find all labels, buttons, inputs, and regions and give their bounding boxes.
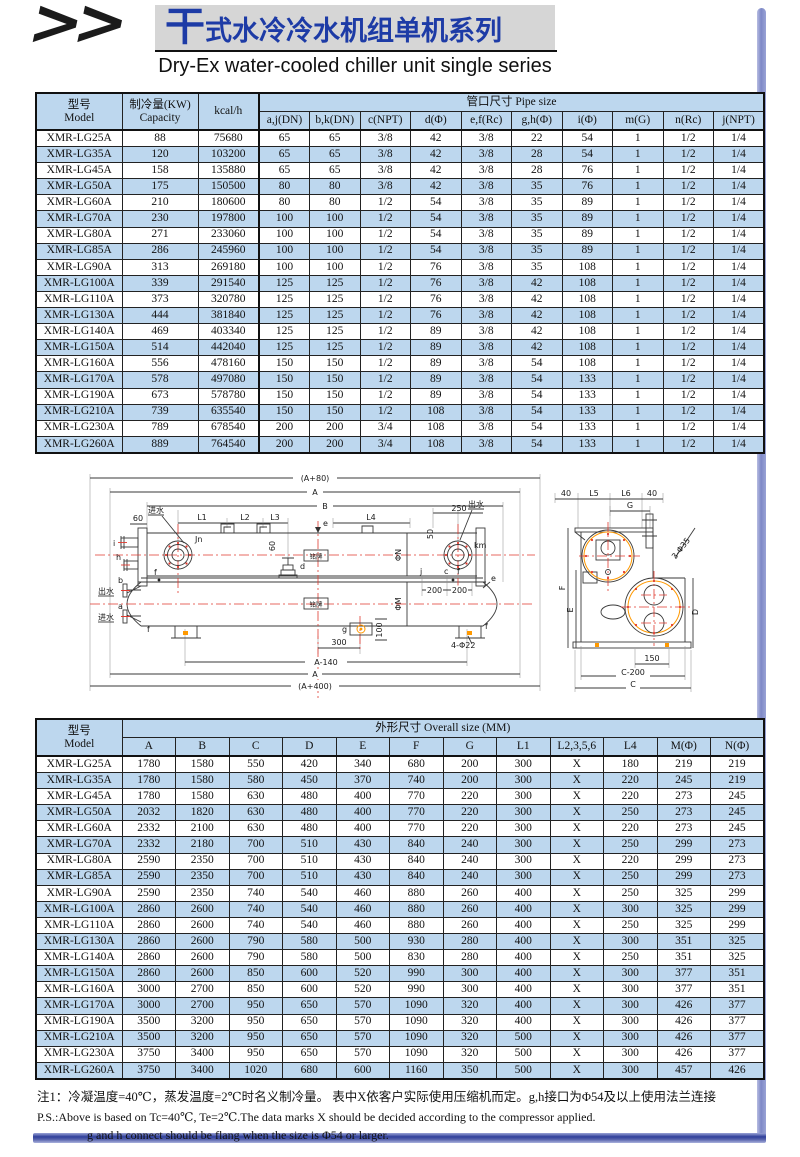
table-cell: 325 [657, 885, 711, 901]
table-cell: 260 [443, 885, 497, 901]
table-cell: 2700 [176, 982, 230, 998]
point-label: f [147, 625, 150, 634]
table-cell: 3/8 [461, 308, 512, 324]
table-cell: 510 [283, 869, 337, 885]
table-row: XMR-LG85A2862459601001001/2543/8358911/2… [36, 243, 764, 259]
table-cell: 1580 [176, 773, 230, 789]
table-cell: 200 [259, 420, 310, 436]
table-cell: 1 [613, 372, 664, 388]
table-cell: 850 [229, 982, 283, 998]
table-cell: 250 [604, 885, 658, 901]
table-cell: XMR-LG25A [36, 130, 122, 147]
table-cell: 133 [562, 436, 613, 453]
table-cell: 500 [497, 1030, 551, 1046]
table-row: XMR-LG130A4443818401251251/2763/84210811… [36, 308, 764, 324]
table-cell: 400 [497, 982, 551, 998]
point-label: f [457, 567, 460, 576]
table-cell: 89 [562, 227, 613, 243]
table-cell: XMR-LG170A [36, 372, 122, 388]
table-cell: 450 [283, 773, 337, 789]
table-cell: 100 [259, 227, 310, 243]
table-cell: 351 [711, 982, 765, 998]
table-cell: 120 [122, 147, 198, 163]
table-cell: 260 [443, 901, 497, 917]
table-cell: 403340 [198, 324, 259, 340]
table-cell: X [550, 966, 604, 982]
table-cell: 770 [390, 821, 444, 837]
page-title-accent: 干 [165, 5, 205, 50]
overall-size-table: 型号 Model 外形尺寸 Overall size (MM) A B C D … [35, 718, 765, 1080]
table-cell: 28 [512, 163, 563, 179]
table-cell: 271 [122, 227, 198, 243]
table-cell: 108 [411, 436, 462, 453]
col-header: a,j(DN) [259, 112, 310, 131]
table-cell: 80 [310, 195, 361, 211]
table-cell: 245 [657, 773, 711, 789]
table-cell: 100 [310, 227, 361, 243]
table-cell: 65 [259, 147, 310, 163]
table-cell: 240 [443, 837, 497, 853]
table-cell: 100 [259, 259, 310, 275]
table-cell: 497080 [198, 372, 259, 388]
table-cell: 175 [122, 179, 198, 195]
dim-label: C [630, 680, 636, 689]
table-cell: 133 [562, 420, 613, 436]
port-label: Jn [194, 535, 202, 544]
table-cell: 300 [604, 901, 658, 917]
table-row: XMR-LG110A28602600740540460880260400X250… [36, 917, 764, 933]
table-cell: XMR-LG160A [36, 356, 122, 372]
table-cell: 630 [229, 821, 283, 837]
table-cell: 1/4 [714, 195, 765, 211]
table-cell: 2332 [122, 837, 176, 853]
table-cell: 200 [443, 773, 497, 789]
capacity-column-header: 制冷量(KW) Capacity [122, 93, 198, 130]
dim-label: 150 [644, 654, 659, 663]
capacity-header-en: Capacity [123, 112, 198, 125]
table-row: XMR-LG80A2712330601001001/2543/8358911/2… [36, 227, 764, 243]
col-header: D [283, 738, 337, 757]
table-cell: 1 [613, 388, 664, 404]
table-cell: 89 [562, 195, 613, 211]
table-cell: 22 [512, 130, 563, 147]
table-cell: 1 [613, 275, 664, 291]
table-cell: 180600 [198, 195, 259, 211]
table-row: XMR-LG260A8897645402002003/41083/8541331… [36, 436, 764, 453]
table-cell: 381840 [198, 308, 259, 324]
table-cell: 400 [497, 901, 551, 917]
table-cell: 65 [310, 130, 361, 147]
table-cell: 320780 [198, 291, 259, 307]
table-cell: 700 [229, 837, 283, 853]
table-row: XMR-LG100A3392915401251251/2763/84210811… [36, 275, 764, 291]
dim-label: A [312, 670, 318, 679]
col-header: F [390, 738, 444, 757]
nameplate-label: 铭牌 [310, 600, 324, 609]
table-cell: 42 [512, 340, 563, 356]
table-cell: X [550, 853, 604, 869]
table-cell: 514 [122, 340, 198, 356]
table-cell: 300 [604, 998, 658, 1014]
table-cell: 3/8 [360, 163, 411, 179]
water-out-label: 出水 [468, 499, 484, 509]
table-cell: 1780 [122, 789, 176, 805]
table-cell: 2590 [122, 885, 176, 901]
table-cell: 250 [604, 805, 658, 821]
table-cell: X [550, 869, 604, 885]
table-row: XMR-LG60A23322100630480400770220300X2202… [36, 821, 764, 837]
table-cell: 108 [562, 324, 613, 340]
table-cell: 150500 [198, 179, 259, 195]
table-cell: 1/2 [360, 388, 411, 404]
model-header-zh: 型号 [37, 725, 122, 738]
table-cell: 3400 [176, 1046, 230, 1062]
table-cell: 54 [512, 356, 563, 372]
table-cell: 1/2 [360, 259, 411, 275]
table-cell: 370 [336, 773, 390, 789]
table-cell: 150 [259, 388, 310, 404]
table-cell: XMR-LG50A [36, 179, 122, 195]
table-row: XMR-LG230A375034009506505701090320500X30… [36, 1046, 764, 1062]
table-cell: 1/2 [663, 195, 714, 211]
table-cell: X [550, 837, 604, 853]
table-cell: 1/2 [360, 372, 411, 388]
table-cell: 950 [229, 1030, 283, 1046]
end-view-drawing: 40 L5 L6 40 G [555, 489, 700, 692]
table-cell: 220 [443, 805, 497, 821]
table-cell: 125 [259, 324, 310, 340]
table-cell: 351 [657, 934, 711, 950]
table-cell: 580 [229, 773, 283, 789]
table-cell: 42 [512, 291, 563, 307]
table-cell: 2600 [176, 950, 230, 966]
table-cell: 3500 [122, 1014, 176, 1030]
table-cell: 377 [711, 1014, 765, 1030]
table-cell: XMR-LG230A [36, 420, 122, 436]
table-cell: 377 [657, 982, 711, 998]
table-cell: 1/4 [714, 211, 765, 227]
table-cell: X [550, 756, 604, 773]
table-row: XMR-LG25A887568065653/8423/8225411/21/4 [36, 130, 764, 147]
table-cell: 3/8 [461, 195, 512, 211]
table-cell: 480 [283, 805, 337, 821]
table-cell: 3200 [176, 1014, 230, 1030]
table-cell: 1090 [390, 1014, 444, 1030]
col-header: C [229, 738, 283, 757]
table-cell: 2860 [122, 934, 176, 950]
table-cell: 3000 [122, 982, 176, 998]
table-cell: 325 [711, 934, 765, 950]
table-cell: 1 [613, 227, 664, 243]
table-cell: 990 [390, 966, 444, 982]
dim-label: L4 [366, 513, 376, 522]
table-cell: 245960 [198, 243, 259, 259]
col-header: c(NPT) [360, 112, 411, 131]
table-cell: 1/2 [663, 179, 714, 195]
table-cell: 3750 [122, 1062, 176, 1079]
table-cell: 3/8 [461, 227, 512, 243]
table-cell: 650 [283, 998, 337, 1014]
col-header: m(G) [613, 112, 664, 131]
table-cell: 1 [613, 420, 664, 436]
table-cell: 108 [562, 275, 613, 291]
table-cell: 3/8 [360, 130, 411, 147]
table-cell: XMR-LG45A [36, 163, 122, 179]
table-cell: 150 [259, 372, 310, 388]
table-cell: X [550, 998, 604, 1014]
table-cell: 1/4 [714, 179, 765, 195]
table-cell: 1/2 [663, 324, 714, 340]
table-cell: 680 [390, 756, 444, 773]
table-cell: 35 [512, 195, 563, 211]
chevrons-decoration: >> [22, 0, 127, 60]
table-cell: 680 [283, 1062, 337, 1079]
table-cell: 1/2 [663, 356, 714, 372]
dim-label: (A+80) [301, 474, 330, 483]
col-header: G [443, 738, 497, 757]
water-in-label: 进水 [148, 505, 164, 515]
table-row: XMR-LG35A12010320065653/8423/8285411/21/… [36, 147, 764, 163]
table-cell: 1/2 [663, 404, 714, 420]
table-cell: 80 [259, 195, 310, 211]
table-cell: 100 [310, 243, 361, 259]
table-cell: 42 [411, 179, 462, 195]
table-cell: 1/4 [714, 163, 765, 179]
dim-label: 4-Φ22 [451, 641, 475, 650]
table-cell: 245 [711, 789, 765, 805]
model-header-en: Model [37, 738, 122, 751]
table-cell: 300 [497, 853, 551, 869]
dim-label: A [312, 488, 318, 497]
table-cell: 291540 [198, 275, 259, 291]
table-cell: 260 [443, 917, 497, 933]
table-cell: 125 [310, 308, 361, 324]
table-cell: 1/2 [663, 436, 714, 453]
table-cell: XMR-LG45A [36, 789, 122, 805]
table-cell: 1780 [122, 756, 176, 773]
table-cell: 1 [613, 211, 664, 227]
table-cell: 273 [711, 837, 765, 853]
water-out-label: 出水 [98, 586, 114, 596]
table-cell: 54 [562, 147, 613, 163]
col-header: M(Φ) [657, 738, 711, 757]
pipe-size-group-header: 管口尺寸 Pipe size [259, 93, 764, 112]
table-cell: 426 [657, 1046, 711, 1062]
table-cell: 1/2 [663, 275, 714, 291]
kcal-column-header: kcal/h [198, 93, 259, 130]
table-cell: 850 [229, 966, 283, 982]
table-cell: 373 [122, 291, 198, 307]
table-row: XMR-LG110A3733207801251251/2763/84210811… [36, 291, 764, 307]
table-cell: 426 [657, 1030, 711, 1046]
dim-label: L6 [621, 489, 631, 498]
table-cell: 230 [122, 211, 198, 227]
table-cell: 219 [657, 756, 711, 773]
table-cell: 133 [562, 388, 613, 404]
col-header: N(Φ) [711, 738, 765, 757]
table-row: XMR-LG260A3750340010206806001160350500X3… [36, 1062, 764, 1079]
table-cell: XMR-LG260A [36, 1062, 122, 1079]
table-cell: 89 [411, 356, 462, 372]
pipe-size-table: 型号 Model 制冷量(KW) Capacity kcal/h 管口尺寸 Pi… [35, 92, 765, 454]
table-cell: 880 [390, 885, 444, 901]
table-row: XMR-LG150A28602600850600520990300400X300… [36, 966, 764, 982]
table-cell: 299 [657, 869, 711, 885]
table-row: XMR-LG70A2301978001001001/2543/8358911/2… [36, 211, 764, 227]
table-cell: X [550, 1062, 604, 1079]
table-cell: 108 [562, 291, 613, 307]
table-cell: 3/8 [461, 243, 512, 259]
point-label: i [113, 539, 115, 548]
table-cell: 245 [711, 821, 765, 837]
table-cell: XMR-LG80A [36, 853, 122, 869]
table-cell: 1 [613, 324, 664, 340]
table-cell: X [550, 950, 604, 966]
dim-label: 50 [426, 529, 435, 539]
table-cell: 1/2 [360, 211, 411, 227]
table-cell: 650 [283, 1046, 337, 1062]
table-cell: 1/4 [714, 356, 765, 372]
table-cell: 54 [411, 227, 462, 243]
table-cell: 1820 [176, 805, 230, 821]
table-cell: 125 [310, 275, 361, 291]
table-cell: 2032 [122, 805, 176, 821]
dim-label: A-140 [314, 658, 337, 667]
table-cell: 3/8 [461, 420, 512, 436]
table-cell: 430 [336, 837, 390, 853]
table-cell: XMR-LG80A [36, 227, 122, 243]
table-row: XMR-LG170A5784970801501501/2893/85413311… [36, 372, 764, 388]
table-cell: 400 [497, 934, 551, 950]
table-cell: 3/8 [461, 147, 512, 163]
table-cell: 556 [122, 356, 198, 372]
table-cell: 430 [336, 869, 390, 885]
col-header: b,k(DN) [310, 112, 361, 131]
table-cell: 1/2 [360, 275, 411, 291]
table-cell: 351 [657, 950, 711, 966]
table-cell: 400 [497, 998, 551, 1014]
table-cell: 220 [604, 853, 658, 869]
col-header: j(NPT) [714, 112, 765, 131]
table-cell: 1/4 [714, 324, 765, 340]
table-cell: 650 [283, 1030, 337, 1046]
table-cell: 3/8 [461, 211, 512, 227]
table-cell: XMR-LG85A [36, 869, 122, 885]
table-cell: 1 [613, 179, 664, 195]
table-cell: 550 [229, 756, 283, 773]
table-cell: 325 [711, 950, 765, 966]
table-cell: 220 [604, 821, 658, 837]
table-cell: 240 [443, 869, 497, 885]
table-cell: 2600 [176, 934, 230, 950]
table-cell: 76 [411, 259, 462, 275]
table-cell: 320 [443, 1030, 497, 1046]
table-cell: 3/8 [461, 404, 512, 420]
table-cell: 88 [122, 130, 198, 147]
table-cell: 220 [443, 821, 497, 837]
table-cell: 35 [512, 227, 563, 243]
table-cell: 108 [562, 259, 613, 275]
table-cell: 1/4 [714, 275, 765, 291]
table-cell: 42 [411, 147, 462, 163]
table-cell: 273 [657, 805, 711, 821]
table-row: XMR-LG35A17801580580450370740200300X2202… [36, 773, 764, 789]
table-row: XMR-LG140A4694033401251251/2893/84210811… [36, 324, 764, 340]
table-cell: 250 [604, 869, 658, 885]
table-cell: XMR-LG60A [36, 195, 122, 211]
table-cell: 400 [497, 966, 551, 982]
table-row: XMR-LG190A6735787801501501/2893/85413311… [36, 388, 764, 404]
table-cell: 457 [657, 1062, 711, 1079]
table-cell: XMR-LG260A [36, 436, 122, 453]
table-cell: 930 [390, 934, 444, 950]
table-cell: 1/2 [360, 308, 411, 324]
table-cell: 300 [604, 1046, 658, 1062]
table-cell: 540 [283, 917, 337, 933]
model-column-header: 型号 Model [36, 93, 122, 130]
dim-label: 60 [268, 541, 277, 551]
table-cell: 789 [122, 420, 198, 436]
table-cell: 250 [604, 917, 658, 933]
table-cell: 1/2 [360, 227, 411, 243]
dim-label: L2 [240, 513, 250, 522]
table-cell: 3/8 [461, 275, 512, 291]
table-cell: 426 [711, 1062, 765, 1079]
table-cell: 480 [283, 789, 337, 805]
table-cell: 1160 [390, 1062, 444, 1079]
table-cell: 1/2 [663, 420, 714, 436]
table-cell: 125 [259, 340, 310, 356]
dim-label: L1 [197, 513, 207, 522]
table-cell: 2350 [176, 853, 230, 869]
table-cell: 570 [336, 1046, 390, 1062]
table-cell: 300 [443, 982, 497, 998]
table-cell: X [550, 789, 604, 805]
table-cell: 350 [443, 1062, 497, 1079]
table-cell: 280 [443, 934, 497, 950]
table-cell: 2860 [122, 917, 176, 933]
table-row: XMR-LG45A15813588065653/8423/8287611/21/… [36, 163, 764, 179]
dim-label: D [691, 609, 700, 615]
table-cell: 299 [657, 853, 711, 869]
table-cell: XMR-LG230A [36, 1046, 122, 1062]
dim-label: L3 [270, 513, 280, 522]
table-cell: 460 [336, 917, 390, 933]
table-cell: 320 [443, 998, 497, 1014]
table-cell: 273 [657, 789, 711, 805]
table-cell: 273 [657, 821, 711, 837]
model-header-en: Model [37, 112, 122, 125]
table-cell: X [550, 805, 604, 821]
table-cell: 950 [229, 1014, 283, 1030]
table-cell: 100 [259, 243, 310, 259]
table-cell: 300 [497, 805, 551, 821]
table-cell: XMR-LG170A [36, 998, 122, 1014]
table-row: XMR-LG210A7396355401501501/21083/8541331… [36, 404, 764, 420]
table-cell: 1/4 [714, 388, 765, 404]
table-cell: 1/2 [360, 291, 411, 307]
table-cell: 35 [512, 179, 563, 195]
table-cell: 1580 [176, 789, 230, 805]
table-cell: 570 [336, 1030, 390, 1046]
table-cell: X [550, 821, 604, 837]
table-cell: 1090 [390, 1046, 444, 1062]
table-cell: 673 [122, 388, 198, 404]
table-cell: 300 [497, 869, 551, 885]
col-header: E [336, 738, 390, 757]
table-cell: XMR-LG25A [36, 756, 122, 773]
point-label: b [118, 576, 123, 585]
